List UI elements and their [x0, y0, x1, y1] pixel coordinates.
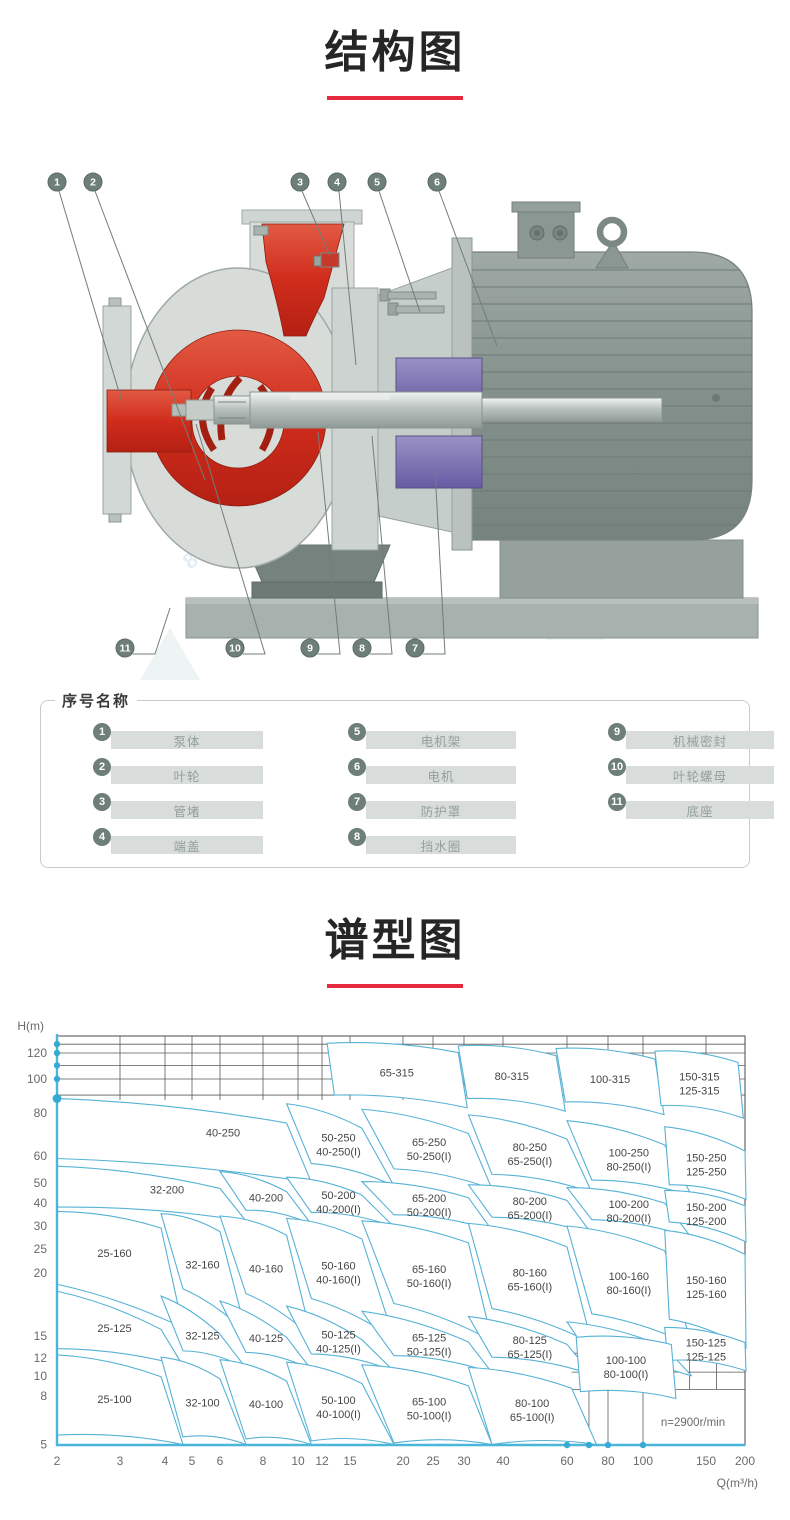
region-label: 80-160(I)	[606, 1285, 651, 1297]
region-label: 40-200	[249, 1192, 283, 1204]
svg-text:2: 2	[90, 177, 96, 189]
legend-item-bar: 电机架	[366, 731, 516, 749]
pump-base	[186, 598, 758, 638]
structure-title-underline	[327, 96, 463, 100]
legend-item-number: 11	[608, 793, 626, 811]
legend-item-number: 2	[93, 758, 111, 776]
svg-text:60: 60	[34, 1149, 48, 1163]
svg-text:80: 80	[601, 1454, 615, 1468]
region-label: 65-160(I)	[507, 1282, 552, 1294]
legend-item-7: 7防护罩	[354, 799, 518, 821]
region-label: 32-125	[185, 1330, 219, 1342]
svg-text:3: 3	[297, 177, 303, 189]
legend-item-number: 8	[348, 828, 366, 846]
legend-item-10: 10叶轮螺母	[614, 764, 776, 786]
parts-legend: 序号名称 1泵体2叶轮3管堵4端盖5电机架6电机7防护罩8挡水圈9机械密封10叶…	[40, 700, 750, 868]
svg-text:60: 60	[560, 1454, 574, 1468]
region-label: 50-100(I)	[407, 1411, 452, 1423]
svg-text:40: 40	[496, 1454, 510, 1468]
region-label: 32-100	[185, 1397, 219, 1409]
svg-text:1: 1	[54, 177, 60, 189]
region-label: 25-160	[97, 1248, 131, 1260]
legend-item-number: 9	[608, 723, 626, 741]
motor-foot	[500, 540, 743, 598]
region-label: 32-200	[150, 1185, 184, 1197]
svg-text:10: 10	[291, 1454, 305, 1468]
legend-item-number: 3	[93, 793, 111, 811]
region-label: 50-250(I)	[407, 1151, 452, 1163]
legend-item-label: 叶轮	[173, 766, 200, 785]
region-label: 100-200	[609, 1199, 649, 1211]
svg-text:11: 11	[119, 643, 130, 655]
region-label: 80-200	[513, 1196, 547, 1208]
region-label: 150-125	[686, 1337, 726, 1349]
legend-item-label: 挡水圈	[421, 836, 462, 855]
region-label: 50-100	[321, 1395, 355, 1407]
svg-text:9: 9	[307, 643, 313, 655]
legend-item-bar: 电机	[366, 766, 516, 784]
legend-item-bar: 叶轮螺母	[626, 766, 774, 784]
region-label: 25-100	[97, 1394, 131, 1406]
svg-text:10: 10	[229, 643, 241, 655]
region-label: 80-100	[515, 1398, 549, 1410]
legend-item-4: 4端盖	[99, 834, 265, 856]
region-label: 80-200(I)	[606, 1213, 651, 1225]
region-label: 40-125	[249, 1333, 283, 1345]
region-label: 50-160(I)	[407, 1278, 452, 1290]
legend-item-bar: 管堵	[111, 801, 263, 819]
svg-text:7: 7	[412, 643, 418, 655]
svg-text:8: 8	[359, 643, 365, 655]
svg-text:40: 40	[34, 1196, 48, 1210]
legend-item-number: 1	[93, 723, 111, 741]
region-label: 150-315	[679, 1071, 719, 1083]
region-label: 150-200	[686, 1202, 726, 1214]
region-label: 25-125	[97, 1323, 131, 1335]
svg-text:20: 20	[34, 1266, 48, 1280]
structure-title: 结构图	[0, 16, 790, 80]
region-label: 125-200	[686, 1216, 726, 1228]
region-label: 80-100(I)	[604, 1369, 649, 1381]
legend-item-label: 底座	[686, 801, 713, 820]
region-label: 80-160	[513, 1268, 547, 1280]
spectrum-title-underline	[327, 984, 463, 988]
region-label: 50-200	[321, 1190, 355, 1202]
region-label: 65-315	[380, 1068, 414, 1080]
region-label: 65-250	[412, 1137, 446, 1149]
region-label: 40-125(I)	[316, 1344, 361, 1356]
region-label: 125-125	[686, 1351, 726, 1363]
legend-item-bar: 防护罩	[366, 801, 516, 819]
structure-section-header: 结构图	[0, 16, 790, 100]
svg-text:100: 100	[633, 1454, 653, 1468]
svg-text:15: 15	[34, 1329, 48, 1343]
svg-text:6: 6	[217, 1454, 224, 1468]
legend-item-label: 端盖	[173, 836, 200, 855]
svg-text:8: 8	[260, 1454, 267, 1468]
region-label: 50-160	[321, 1261, 355, 1273]
legend-item-number: 10	[608, 758, 626, 776]
legend-item-number: 6	[348, 758, 366, 776]
svg-text:100: 100	[27, 1072, 47, 1086]
region-label: 125-315	[679, 1085, 719, 1097]
region-label: 65-100	[412, 1397, 446, 1409]
svg-text:12: 12	[315, 1454, 329, 1468]
svg-text:4: 4	[162, 1454, 169, 1468]
speed-annotation: n=2900r/min	[661, 1417, 725, 1429]
legend-item-11: 11底座	[614, 799, 776, 821]
legend-item-label: 机械密封	[673, 731, 727, 750]
legend-item-label: 叶轮螺母	[673, 766, 727, 785]
region-label: 65-200(I)	[507, 1210, 552, 1222]
region-label: 125-160	[686, 1289, 726, 1301]
terminal-box	[512, 202, 580, 258]
legend-item-5: 5电机架	[354, 729, 518, 751]
svg-text:12: 12	[34, 1351, 48, 1365]
region-label: 50-200(I)	[407, 1207, 452, 1219]
legend-item-number: 7	[348, 793, 366, 811]
region-label: 80-125	[513, 1335, 547, 1347]
legend-item-8: 8挡水圈	[354, 834, 518, 856]
legend-item-bar: 机械密封	[626, 731, 774, 749]
region-label: 150-250	[686, 1152, 726, 1164]
region-label: 40-100(I)	[316, 1409, 361, 1421]
legend-item-number: 4	[93, 828, 111, 846]
legend-item-label: 电机架	[421, 731, 462, 750]
region-label: 125-250	[686, 1166, 726, 1178]
region-label: 65-250(I)	[507, 1156, 552, 1168]
svg-text:30: 30	[34, 1219, 48, 1233]
svg-text:25: 25	[34, 1242, 48, 1256]
legend-item-6: 6电机	[354, 764, 518, 786]
svg-text:3: 3	[117, 1454, 124, 1468]
region-label: 32-160	[185, 1260, 219, 1272]
page: 结构图 857085708570	[0, 0, 790, 1520]
region-label: 50-125(I)	[407, 1346, 452, 1358]
legend-item-bar: 挡水圈	[366, 836, 516, 854]
region-label: 100-250	[609, 1147, 649, 1159]
legend-item-label: 电机	[427, 766, 454, 785]
region-label: 65-125	[412, 1332, 446, 1344]
region-label: 40-160	[249, 1263, 283, 1275]
legend-item-bar: 端盖	[111, 836, 263, 854]
svg-text:2: 2	[54, 1454, 61, 1468]
lifting-eye	[596, 220, 628, 268]
region-label: 100-315	[590, 1074, 630, 1086]
svg-text:6: 6	[434, 177, 440, 189]
region-label: 40-250	[206, 1128, 240, 1140]
region-label: 40-160(I)	[316, 1275, 361, 1287]
legend-title: 序号名称	[55, 690, 137, 711]
legend-item-label: 防护罩	[421, 801, 462, 820]
legend-item-9: 9机械密封	[614, 729, 776, 751]
svg-text:20: 20	[396, 1454, 410, 1468]
spectrum-title: 谱型图	[0, 904, 790, 968]
svg-text:10: 10	[34, 1369, 48, 1383]
svg-text:50: 50	[34, 1176, 48, 1190]
region-label: 50-125	[321, 1330, 355, 1342]
region-label: 65-125(I)	[507, 1349, 552, 1361]
region-label: 80-315	[495, 1071, 529, 1083]
region-label: 80-250	[513, 1142, 547, 1154]
region-label: 65-200	[412, 1193, 446, 1205]
legend-item-label: 泵体	[173, 731, 200, 750]
svg-text:15: 15	[343, 1454, 357, 1468]
legend-item-label: 管堵	[173, 801, 200, 820]
svg-text:5: 5	[189, 1454, 196, 1468]
legend-item-3: 3管堵	[99, 799, 265, 821]
svg-text:8: 8	[40, 1389, 47, 1403]
x-axis-title: Q(m³/h)	[717, 1476, 758, 1490]
region-label: 100-160	[609, 1271, 649, 1283]
legend-item-number: 5	[348, 723, 366, 741]
y-axis-title: H(m)	[17, 1019, 44, 1033]
svg-text:150: 150	[696, 1454, 716, 1468]
svg-text:5: 5	[374, 177, 380, 189]
region-label: 100-100	[606, 1355, 646, 1367]
region-label: 40-100	[249, 1399, 283, 1411]
region-label: 65-100(I)	[510, 1412, 555, 1424]
region-label: 40-200(I)	[316, 1204, 361, 1216]
legend-item-bar: 泵体	[111, 731, 263, 749]
motor	[452, 202, 752, 550]
region-label: 50-250	[321, 1132, 355, 1144]
svg-text:25: 25	[426, 1454, 440, 1468]
svg-text:5: 5	[40, 1438, 47, 1452]
legend-item-2: 2叶轮	[99, 764, 265, 786]
svg-text:200: 200	[735, 1454, 755, 1468]
region-label: 150-160	[686, 1275, 726, 1287]
spectrum-section-header: 谱型图	[0, 904, 790, 988]
pump-structure-diagram: 857085708570	[0, 140, 790, 700]
pump-selection-chart: 65-31580-315100-315150-315125-31540-2505…	[0, 1000, 790, 1520]
region-label: 80-250(I)	[606, 1161, 651, 1173]
svg-text:30: 30	[457, 1454, 471, 1468]
svg-text:120: 120	[27, 1046, 47, 1060]
legend-item-bar: 叶轮	[111, 766, 263, 784]
svg-text:4: 4	[334, 177, 340, 189]
legend-item-bar: 底座	[626, 801, 774, 819]
svg-text:80: 80	[34, 1106, 48, 1120]
region-100-100	[576, 1336, 676, 1398]
region-label: 65-160	[412, 1264, 446, 1276]
region-label: 40-250(I)	[316, 1146, 361, 1158]
legend-item-1: 1泵体	[99, 729, 265, 751]
